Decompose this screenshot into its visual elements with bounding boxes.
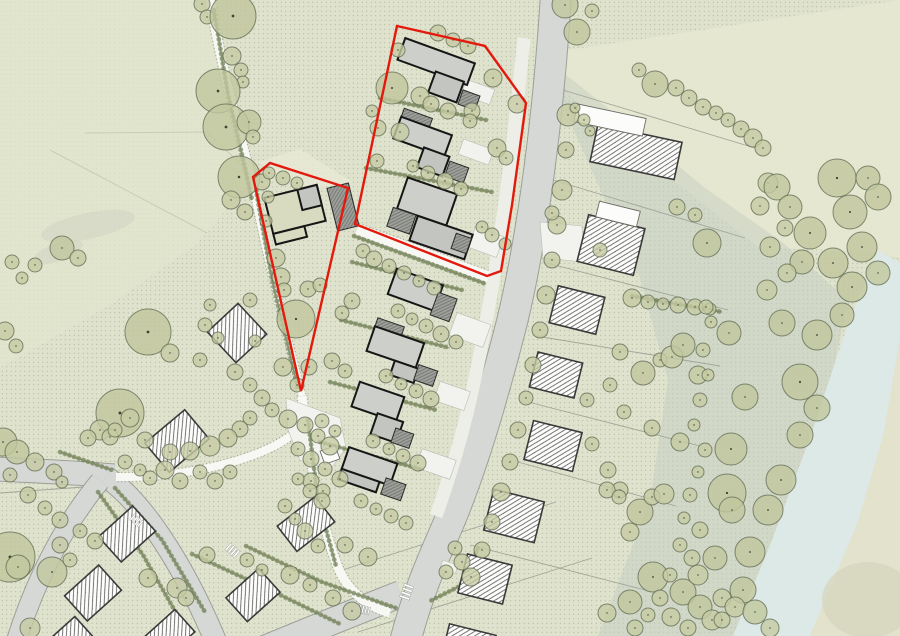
tree-trunk-dot bbox=[209, 445, 210, 446]
tree-trunk-dot bbox=[651, 427, 652, 428]
tree-trunk-dot bbox=[710, 321, 711, 322]
tree-trunk-dot bbox=[204, 324, 205, 325]
tree-trunk-dot bbox=[691, 557, 692, 558]
tree-trunk-dot bbox=[139, 469, 140, 470]
tree-trunk-dot bbox=[176, 587, 177, 588]
tree-trunk-dot bbox=[390, 515, 391, 516]
tree-trunk-dot bbox=[675, 87, 676, 88]
tree-trunk-dot bbox=[607, 469, 608, 470]
tree-trunk-dot bbox=[705, 306, 706, 307]
tree-trunk-dot bbox=[447, 110, 448, 111]
tree-trunk-dot bbox=[702, 349, 703, 350]
tree-trunk-dot bbox=[445, 571, 446, 572]
tree-trunk-dot bbox=[321, 420, 322, 421]
tree-trunk-dot bbox=[268, 172, 269, 173]
tree-trunk-dot bbox=[21, 277, 22, 278]
tree-trunk-dot bbox=[329, 445, 330, 446]
tree-trunk-dot bbox=[836, 177, 838, 179]
tree-trunk-dot bbox=[271, 409, 272, 410]
tree-trunk-dot bbox=[682, 344, 683, 345]
tree-trunk-dot bbox=[295, 318, 297, 320]
tree-trunk-dot bbox=[809, 232, 811, 234]
tree-trunk-dot bbox=[372, 440, 373, 441]
tree-trunk-dot bbox=[642, 372, 643, 373]
tree-trunk-dot bbox=[781, 322, 783, 324]
tree-trunk-dot bbox=[246, 559, 247, 560]
tree-trunk-dot bbox=[671, 356, 672, 357]
tree-trunk-dot bbox=[230, 199, 231, 200]
tree-canopy bbox=[20, 618, 40, 636]
tree-trunk-dot bbox=[307, 288, 308, 289]
tree-trunk-dot bbox=[740, 128, 741, 129]
tree-trunk-dot bbox=[412, 165, 413, 166]
tree-trunk-dot bbox=[199, 359, 200, 360]
tree-trunk-dot bbox=[310, 458, 311, 459]
tree-trunk-dot bbox=[491, 521, 492, 522]
tree-trunk-dot bbox=[440, 333, 441, 334]
tree-trunk-dot bbox=[694, 214, 695, 215]
site-plan-map bbox=[0, 0, 900, 636]
tree-trunk-dot bbox=[164, 469, 165, 470]
tree-trunk-dot bbox=[373, 258, 374, 259]
tree-trunk-dot bbox=[405, 522, 406, 523]
tree-trunk-dot bbox=[231, 55, 232, 56]
tree-trunk-dot bbox=[351, 610, 352, 611]
tree-trunk-dot bbox=[332, 597, 333, 598]
tree-trunk-dot bbox=[799, 381, 801, 383]
tree-trunk-dot bbox=[339, 478, 340, 479]
tree-trunk-dot bbox=[496, 147, 497, 148]
tree-trunk-dot bbox=[682, 591, 684, 593]
tree-trunk-dot bbox=[9, 474, 10, 475]
tree-trunk-dot bbox=[659, 359, 660, 360]
tree-trunk-dot bbox=[308, 366, 309, 367]
tree-trunk-dot bbox=[623, 411, 624, 412]
tree-trunk-dot bbox=[689, 494, 690, 495]
tree-trunk-dot bbox=[742, 589, 744, 591]
tree-trunk-dot bbox=[769, 246, 770, 247]
field-top-left bbox=[0, 0, 253, 368]
tree-trunk-dot bbox=[53, 471, 54, 472]
tree-trunk-dot bbox=[706, 242, 708, 244]
tree-trunk-dot bbox=[662, 303, 663, 304]
tree-trunk-dot bbox=[321, 500, 322, 501]
tree-trunk-dot bbox=[169, 451, 170, 452]
tree-trunk-dot bbox=[491, 234, 492, 235]
tree-trunk-dot bbox=[206, 16, 207, 17]
tree-trunk-dot bbox=[639, 511, 641, 513]
tree-trunk-dot bbox=[697, 471, 698, 472]
tree-trunk-dot bbox=[400, 383, 401, 384]
tree-trunk-dot bbox=[467, 45, 468, 46]
tree-trunk-dot bbox=[714, 557, 715, 558]
tree-trunk-dot bbox=[331, 360, 332, 361]
tree-trunk-dot bbox=[229, 471, 230, 472]
tree-trunk-dot bbox=[564, 4, 566, 6]
building-part-garage bbox=[391, 428, 414, 448]
tree-trunk-dot bbox=[51, 571, 53, 573]
tree-trunk-dot bbox=[591, 10, 592, 11]
tree-trunk-dot bbox=[699, 529, 700, 530]
tree-trunk-dot bbox=[17, 566, 18, 567]
tree-trunk-dot bbox=[461, 561, 462, 562]
tree-trunk-dot bbox=[784, 227, 785, 228]
tree-trunk-dot bbox=[282, 366, 283, 367]
tree-trunk-dot bbox=[471, 110, 472, 111]
tree-trunk-dot bbox=[304, 530, 305, 531]
tree-trunk-dot bbox=[697, 574, 698, 575]
building-existing bbox=[226, 568, 280, 621]
tree-trunk-dot bbox=[734, 606, 735, 607]
tree-trunk-dot bbox=[252, 136, 253, 137]
tree-trunk-dot bbox=[776, 186, 778, 188]
tree-trunk-dot bbox=[652, 576, 654, 578]
tree-trunk-dot bbox=[319, 284, 320, 285]
tree-trunk-dot bbox=[599, 249, 600, 250]
tree-trunk-dot bbox=[591, 443, 592, 444]
tree-trunk-dot bbox=[169, 352, 170, 353]
tree-trunk-dot bbox=[362, 250, 363, 251]
tree-trunk-dot bbox=[61, 481, 62, 482]
tree-trunk-dot bbox=[147, 331, 150, 334]
tree-trunk-dot bbox=[532, 364, 533, 365]
tree-trunk-dot bbox=[609, 384, 610, 385]
tree-trunk-dot bbox=[371, 110, 372, 111]
tree-trunk-dot bbox=[551, 212, 552, 213]
tree-trunk-dot bbox=[707, 374, 708, 375]
tree-trunk-dot bbox=[304, 424, 305, 425]
tree-trunk-dot bbox=[832, 262, 834, 264]
tree-trunk-dot bbox=[877, 196, 879, 198]
tree-trunk-dot bbox=[261, 181, 262, 182]
tree-trunk-dot bbox=[688, 97, 689, 98]
tree-trunk-dot bbox=[209, 304, 210, 305]
tree-trunk-dot bbox=[702, 106, 703, 107]
tree-trunk-dot bbox=[505, 157, 506, 158]
building-part-body2 bbox=[297, 185, 321, 210]
tree-trunk-dot bbox=[275, 257, 276, 258]
tree-trunk-dot bbox=[11, 261, 12, 262]
tree-trunk-dot bbox=[294, 518, 295, 519]
tree-trunk-dot bbox=[324, 468, 325, 469]
tree-trunk-dot bbox=[34, 461, 35, 462]
tree-trunk-dot bbox=[631, 297, 632, 298]
building-new bbox=[264, 185, 328, 245]
building-existing bbox=[65, 565, 122, 621]
tree-trunk-dot bbox=[317, 545, 318, 546]
tree-trunk-dot bbox=[310, 480, 311, 481]
tree-trunk-dot bbox=[551, 259, 552, 260]
tree-trunk-dot bbox=[94, 540, 95, 541]
tree-trunk-dot bbox=[388, 448, 389, 449]
tree-trunk-dot bbox=[589, 130, 590, 131]
tree-trunk-dot bbox=[816, 334, 818, 336]
tree-trunk-dot bbox=[109, 436, 110, 437]
tree-trunk-dot bbox=[227, 437, 228, 438]
tree-trunk-dot bbox=[629, 531, 630, 532]
tree-trunk-dot bbox=[679, 441, 680, 442]
tree-trunk-dot bbox=[454, 547, 455, 548]
tree-trunk-dot bbox=[561, 189, 562, 190]
building-existing bbox=[145, 609, 195, 636]
tree-trunk-dot bbox=[759, 205, 760, 206]
tree-trunk-dot bbox=[69, 559, 70, 560]
tree-trunk-dot bbox=[576, 31, 578, 33]
tree-trunk-dot bbox=[683, 517, 684, 518]
tree-trunk-dot bbox=[334, 430, 335, 431]
tree-trunk-dot bbox=[730, 448, 732, 450]
tree-trunk-dot bbox=[351, 300, 352, 301]
tree-trunk-dot bbox=[16, 451, 17, 452]
tree-trunk-dot bbox=[309, 584, 310, 585]
tree-trunk-dot bbox=[375, 508, 376, 509]
tree-trunk-dot bbox=[284, 505, 285, 506]
tree-trunk-dot bbox=[430, 398, 431, 399]
tree-trunk-dot bbox=[199, 471, 200, 472]
tree-trunk-dot bbox=[754, 611, 755, 612]
tree-trunk-dot bbox=[214, 480, 215, 481]
tree-trunk-dot bbox=[861, 246, 863, 248]
tree-trunk-dot bbox=[388, 265, 389, 266]
tree-trunk-dot bbox=[789, 206, 790, 207]
tree-trunk-dot bbox=[634, 627, 635, 628]
tree-trunk-dot bbox=[206, 554, 207, 555]
tree-trunk-dot bbox=[647, 301, 648, 302]
tree-trunk-dot bbox=[297, 448, 298, 449]
tree-trunk-dot bbox=[697, 374, 698, 375]
tree-trunk-dot bbox=[297, 478, 298, 479]
tree-trunk-dot bbox=[261, 569, 262, 570]
tree-trunk-dot bbox=[217, 90, 220, 93]
tree-trunk-dot bbox=[618, 496, 619, 497]
tree-trunk-dot bbox=[238, 176, 241, 179]
tree-trunk-dot bbox=[509, 461, 510, 462]
tree-trunk-dot bbox=[367, 556, 368, 557]
tree-trunk-dot bbox=[418, 280, 419, 281]
tree-trunk-dot bbox=[545, 294, 546, 295]
tree-trunk-dot bbox=[119, 412, 122, 415]
tree-trunk-dot bbox=[801, 261, 802, 262]
tree-trunk-dot bbox=[240, 69, 241, 70]
tree-trunk-dot bbox=[877, 272, 878, 273]
tree-trunk-dot bbox=[425, 325, 426, 326]
tree-trunk-dot bbox=[583, 119, 584, 120]
tree-trunk-dot bbox=[114, 429, 115, 430]
tree-trunk-dot bbox=[444, 180, 445, 181]
tree-trunk-dot bbox=[99, 429, 100, 430]
tree-trunk-dot bbox=[59, 544, 60, 545]
tree-trunk-dot bbox=[296, 384, 297, 385]
tree-trunk-dot bbox=[492, 77, 493, 78]
tree-trunk-dot bbox=[638, 69, 639, 70]
tree-trunk-dot bbox=[254, 340, 255, 341]
driveway bbox=[434, 381, 471, 410]
tree-trunk-dot bbox=[727, 119, 728, 120]
tree-trunk-dot bbox=[289, 574, 290, 575]
tree-trunk-dot bbox=[654, 83, 656, 85]
tree-trunk-dot bbox=[427, 172, 428, 173]
tree-trunk-dot bbox=[433, 287, 434, 288]
tree-trunk-dot bbox=[677, 304, 678, 305]
tree-trunk-dot bbox=[629, 601, 630, 602]
tree-trunk-dot bbox=[694, 306, 695, 307]
tree-trunk-dot bbox=[341, 312, 342, 313]
tree-trunk-dot bbox=[27, 494, 28, 495]
building-part-garage bbox=[414, 365, 438, 387]
tree-trunk-dot bbox=[265, 220, 266, 221]
tree-trunk-dot bbox=[517, 429, 518, 430]
crosswalk bbox=[225, 543, 240, 558]
tree-trunk-dot bbox=[606, 489, 607, 490]
tree-trunk-dot bbox=[749, 551, 751, 553]
tree-trunk-dot bbox=[397, 310, 398, 311]
tree-trunk-dot bbox=[676, 206, 677, 207]
tree-trunk-dot bbox=[248, 121, 249, 122]
tree-trunk-dot bbox=[267, 196, 268, 197]
building-existing bbox=[440, 624, 496, 636]
tree-canopy bbox=[0, 322, 14, 340]
tree-trunk-dot bbox=[385, 375, 386, 376]
tree-trunk-dot bbox=[15, 345, 16, 346]
tree-trunk-dot bbox=[460, 188, 461, 189]
tree-trunk-dot bbox=[249, 299, 250, 300]
tree-trunk-dot bbox=[744, 396, 746, 398]
tree-trunk-dot bbox=[786, 272, 787, 273]
tree-trunk-dot bbox=[567, 114, 568, 115]
tree-trunk-dot bbox=[437, 32, 438, 33]
tree-trunk-dot bbox=[693, 424, 694, 425]
tree-trunk-dot bbox=[391, 87, 393, 89]
tree-trunk-dot bbox=[841, 314, 842, 315]
tree-trunk-dot bbox=[731, 509, 733, 511]
tree-trunk-dot bbox=[659, 597, 660, 598]
tree-trunk-dot bbox=[77, 257, 78, 258]
tree-trunk-dot bbox=[147, 577, 148, 578]
tree-trunk-dot bbox=[309, 490, 310, 491]
tree-trunk-dot bbox=[574, 107, 575, 108]
tree-trunk-dot bbox=[455, 341, 456, 342]
tree-trunk-dot bbox=[481, 549, 482, 550]
tree-trunk-dot bbox=[403, 272, 404, 273]
tree-trunk-dot bbox=[606, 612, 607, 613]
tree-trunk-dot bbox=[124, 461, 125, 462]
tree-trunk-dot bbox=[687, 627, 688, 628]
tree-trunk-dot bbox=[144, 439, 145, 440]
tree-trunk-dot bbox=[4, 330, 5, 331]
tree-trunk-dot bbox=[87, 437, 88, 438]
tree-trunk-dot bbox=[500, 491, 501, 492]
tree-trunk-dot bbox=[766, 289, 767, 290]
tree-trunk-dot bbox=[402, 455, 403, 456]
tree-trunk-dot bbox=[752, 137, 753, 138]
building-existing bbox=[145, 410, 209, 473]
tree-trunk-dot bbox=[726, 492, 728, 494]
tree-trunk-dot bbox=[239, 428, 240, 429]
tree-trunk-dot bbox=[728, 332, 729, 333]
tree-trunk-dot bbox=[189, 450, 190, 451]
tree-trunk-dot bbox=[344, 370, 345, 371]
tree-trunk-dot bbox=[2, 441, 4, 443]
tree-trunk-dot bbox=[287, 418, 288, 419]
tree-trunk-dot bbox=[249, 384, 250, 385]
tree-trunk-dot bbox=[179, 480, 180, 481]
tree-trunk-dot bbox=[296, 182, 297, 183]
tree-trunk-dot bbox=[586, 399, 587, 400]
tree-trunk-dot bbox=[867, 177, 868, 178]
tree-trunk-dot bbox=[704, 449, 705, 450]
tree-trunk-dot bbox=[411, 318, 412, 319]
tree-trunk-dot bbox=[225, 126, 228, 129]
tree-trunk-dot bbox=[29, 627, 30, 628]
tree-trunk-dot bbox=[669, 574, 670, 575]
tree-trunk-dot bbox=[762, 147, 763, 148]
tree-trunk-dot bbox=[344, 544, 345, 545]
tree-trunk-dot bbox=[799, 434, 801, 436]
tree-trunk-dot bbox=[663, 493, 664, 494]
tree-trunk-dot bbox=[185, 597, 186, 598]
tree-trunk-dot bbox=[399, 131, 400, 132]
tree-trunk-dot bbox=[217, 337, 218, 338]
tree-trunk-dot bbox=[242, 81, 243, 82]
tree-trunk-dot bbox=[261, 397, 262, 398]
tree-trunk-dot bbox=[780, 479, 782, 481]
tree-trunk-dot bbox=[699, 606, 700, 607]
tree-trunk-dot bbox=[539, 329, 540, 330]
tree-trunk-dot bbox=[397, 49, 398, 50]
tree-trunk-dot bbox=[149, 477, 150, 478]
tree-trunk-dot bbox=[377, 127, 378, 128]
tree-trunk-dot bbox=[44, 507, 45, 508]
tree-trunk-dot bbox=[849, 211, 851, 213]
tree-trunk-dot bbox=[234, 371, 235, 372]
tree-trunk-dot bbox=[129, 417, 130, 418]
tree-trunk-dot bbox=[699, 399, 700, 400]
tree-trunk-dot bbox=[201, 3, 202, 4]
tree-trunk-dot bbox=[249, 417, 250, 418]
tree-trunk-dot bbox=[711, 619, 712, 620]
tree-trunk-dot bbox=[59, 519, 60, 520]
tree-trunk-dot bbox=[679, 544, 680, 545]
tree-trunk-dot bbox=[417, 462, 418, 463]
tree-trunk-dot bbox=[61, 247, 62, 248]
tree-trunk-dot bbox=[470, 576, 471, 577]
tree-trunk-dot bbox=[647, 614, 648, 615]
tree-trunk-dot bbox=[619, 351, 620, 352]
tree-trunk-dot bbox=[816, 407, 818, 409]
tree-trunk-dot bbox=[322, 490, 323, 491]
tree-trunk-dot bbox=[376, 160, 377, 161]
tree-trunk-dot bbox=[651, 496, 652, 497]
tree-trunk-dot bbox=[556, 224, 557, 225]
tree-trunk-dot bbox=[565, 149, 566, 150]
tree-trunk-dot bbox=[670, 616, 671, 617]
tree-trunk-dot bbox=[469, 120, 470, 121]
tree-trunk-dot bbox=[481, 226, 482, 227]
building-existing bbox=[524, 421, 582, 472]
tree-trunk-dot bbox=[280, 276, 281, 277]
tree-trunk-dot bbox=[767, 509, 769, 511]
tree-trunk-dot bbox=[282, 177, 283, 178]
tree-trunk-dot bbox=[721, 619, 722, 620]
building-existing bbox=[549, 286, 605, 334]
tree-trunk-dot bbox=[525, 397, 526, 398]
tree-trunk-dot bbox=[769, 627, 770, 628]
tree-trunk-dot bbox=[516, 103, 517, 104]
tree-trunk-dot bbox=[232, 15, 235, 18]
tree-trunk-dot bbox=[721, 597, 722, 598]
tree-trunk-dot bbox=[283, 289, 284, 290]
tree-trunk-dot bbox=[715, 112, 716, 113]
